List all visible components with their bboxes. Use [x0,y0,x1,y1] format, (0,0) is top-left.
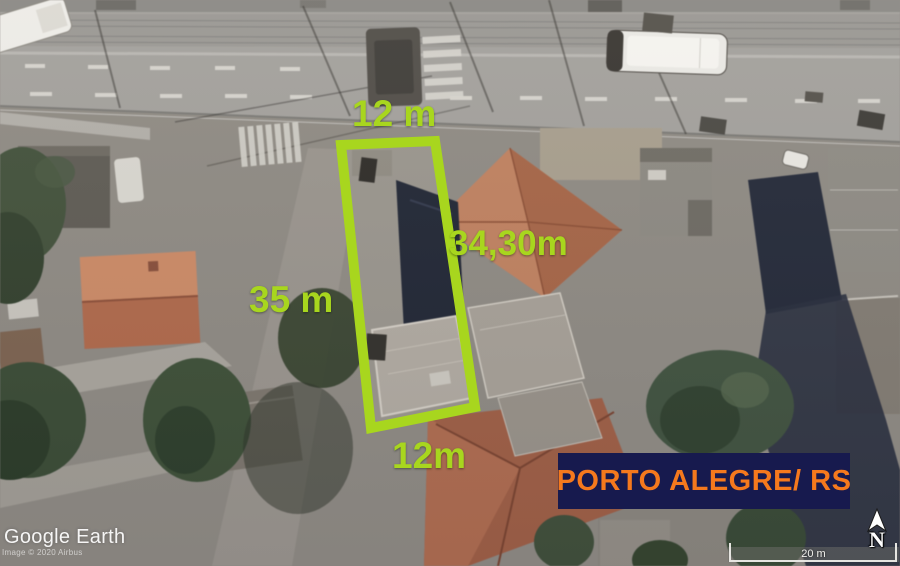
label-right-length: 34,30m [449,226,568,261]
google-earth-viewport: 12 m 34,30m 35 m 12m PORTO ALEGRE/ RS Go… [0,0,900,566]
label-top-width: 12 m [352,95,436,132]
scale-bar-label: 20 m [728,548,899,561]
imagery-attribution: Image © 2020 Airbus [2,548,83,557]
location-banner-text: PORTO ALEGRE/ RS [557,465,852,498]
label-bottom-width: 12m [392,437,466,474]
google-earth-logo: Google Earth [4,526,125,549]
location-banner: PORTO ALEGRE/ RS [558,453,850,509]
label-left-length: 35 m [249,281,333,318]
